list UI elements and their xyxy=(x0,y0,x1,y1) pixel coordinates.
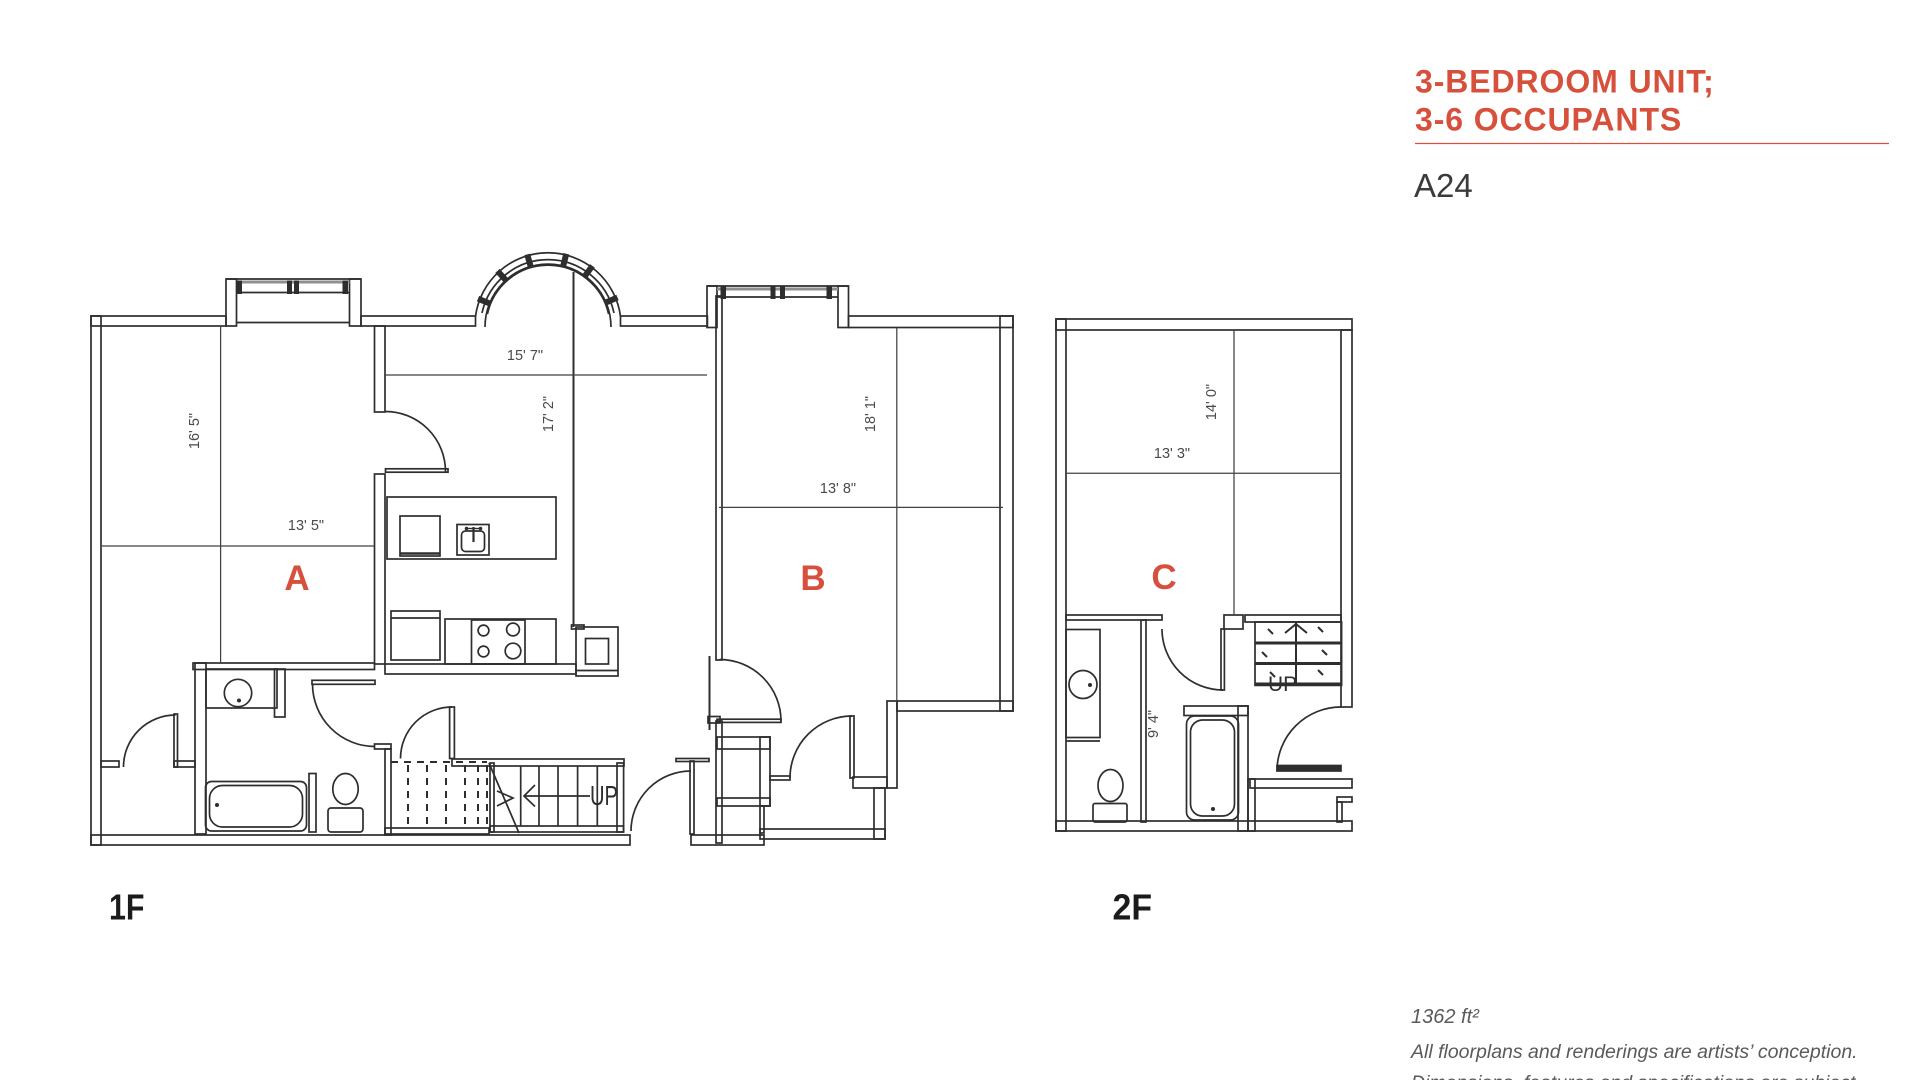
svg-text:1F: 1F xyxy=(109,887,145,928)
svg-text:UP: UP xyxy=(1268,672,1297,696)
svg-text:13' 5": 13' 5" xyxy=(288,518,324,534)
svg-text:15' 7": 15' 7" xyxy=(507,348,543,364)
svg-text:All floorplans and renderings: All floorplans and renderings are artist… xyxy=(1410,1041,1858,1063)
svg-text:UP: UP xyxy=(590,780,618,811)
svg-text:17' 2": 17' 2" xyxy=(541,396,557,432)
svg-text:A: A xyxy=(284,559,309,598)
svg-text:16' 5": 16' 5" xyxy=(187,413,203,449)
svg-text:13' 3": 13' 3" xyxy=(1154,446,1190,462)
svg-text:13' 8": 13' 8" xyxy=(820,481,856,497)
svg-text:3-6 OCCUPANTS: 3-6 OCCUPANTS xyxy=(1415,102,1682,138)
svg-text:14' 0": 14' 0" xyxy=(1204,384,1220,420)
svg-text:2F: 2F xyxy=(1113,887,1153,928)
svg-text:3-BEDROOM UNIT;: 3-BEDROOM UNIT; xyxy=(1415,64,1715,100)
svg-text:1362 ft²: 1362 ft² xyxy=(1411,1006,1480,1028)
svg-text:18' 1": 18' 1" xyxy=(863,396,879,432)
svg-text:A24: A24 xyxy=(1414,167,1473,204)
svg-text:C: C xyxy=(1151,558,1176,597)
svg-text:B: B xyxy=(800,559,825,598)
svg-text:Dimensions, features and speci: Dimensions, features and specifications … xyxy=(1411,1072,1857,1080)
svg-text:9' 4": 9' 4" xyxy=(1146,710,1162,738)
